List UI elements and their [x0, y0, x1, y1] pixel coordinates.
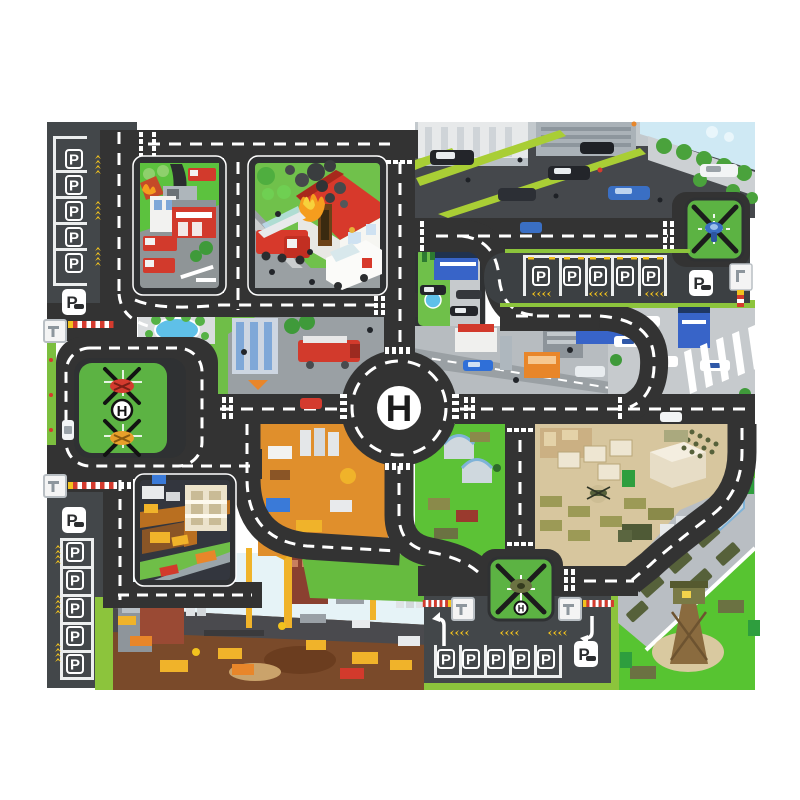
svg-text:H: H — [518, 604, 525, 614]
svg-text:H: H — [386, 388, 413, 429]
svg-text:H: H — [117, 403, 128, 420]
